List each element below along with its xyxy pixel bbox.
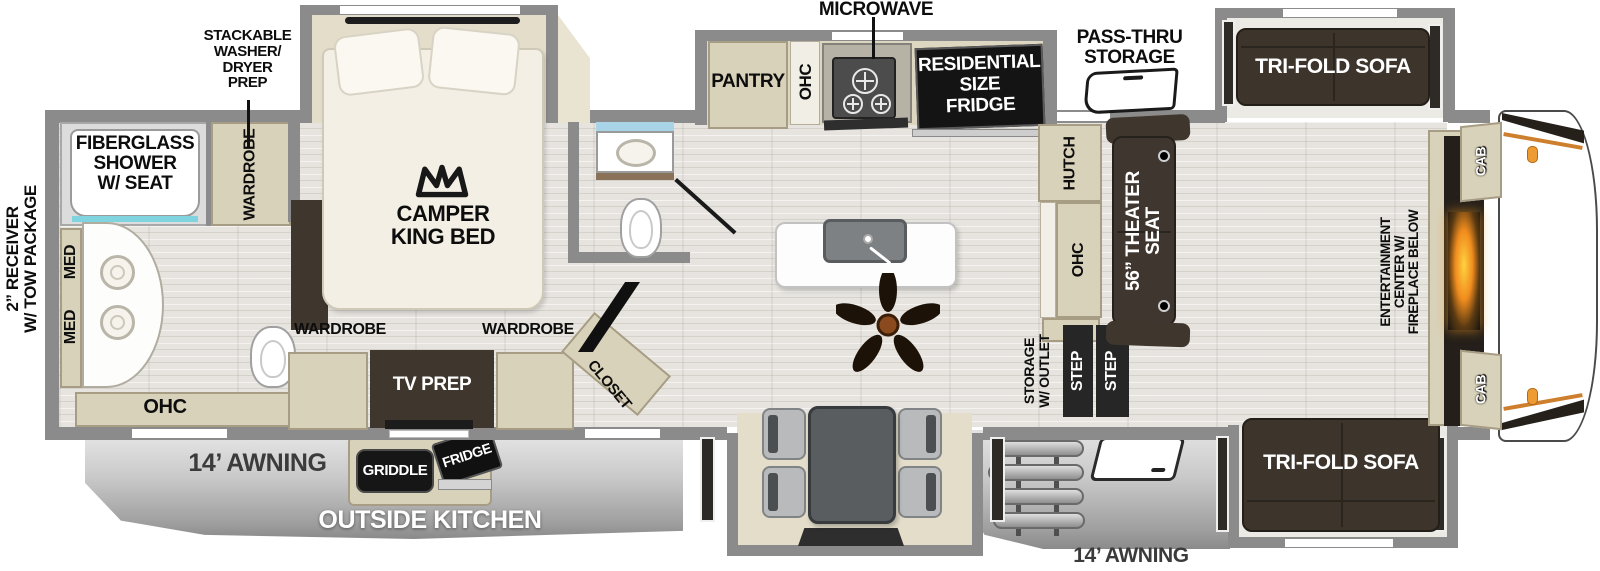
washer-dryer-pointer <box>247 100 250 147</box>
halfbath-sink-cabinet <box>596 131 674 173</box>
griddle: GRIDDLE <box>356 449 434 493</box>
wardrobe-left-label: WARDROBE <box>290 322 390 339</box>
step-rear-label: STEP <box>1070 341 1086 401</box>
fireplace <box>1448 212 1480 330</box>
rear-wardrobe-label: WARDROBE <box>243 127 260 223</box>
outside-fridge-label: FRIDGE <box>437 439 497 471</box>
outside-fridge-shelf <box>438 479 492 490</box>
dinette-window-left <box>700 437 715 522</box>
pantry-label: PANTRY <box>706 72 790 92</box>
entertainment-label: ENTERTAINMENT CENTER W/ FIREPLACE BELOW <box>1379 197 1425 347</box>
residential-fridge: RESIDENTIAL SIZE FRIDGE <box>915 44 1046 130</box>
entry-door-handle <box>1151 468 1166 472</box>
tv-prep-label: TV PREP <box>370 375 494 395</box>
bedroom-slideout-right-wall <box>546 5 558 123</box>
awning-left-label: 14’ AWNING <box>150 450 365 476</box>
kitchen-vent-sill <box>832 32 903 40</box>
hutch-ohc-label: OHC <box>1071 240 1087 280</box>
vanity-sink-2 <box>100 305 135 340</box>
sofa-bottom-slideout-right-wall <box>1447 425 1458 547</box>
outside-kitchen-label: OUTSIDE KITCHEN <box>310 507 550 533</box>
washer-dryer-label: STACKABLE WASHER/ DRYER PREP <box>185 28 310 91</box>
theater-seat-console-bottom <box>1106 321 1191 348</box>
sofa-bottom <box>1242 418 1440 532</box>
burner-icon-large <box>852 68 878 94</box>
med-lower-label: MED <box>63 304 79 350</box>
marker-light-top <box>1527 146 1538 163</box>
pass-thru-label: PASS-THRU STORAGE <box>1072 28 1187 68</box>
hutch-label: HUTCH <box>1063 134 1080 194</box>
bottom-window-sill-bath <box>132 429 227 438</box>
halfbath-sink-shelf <box>596 173 674 180</box>
crown-icon <box>413 162 471 200</box>
cup-holder-icon-top <box>1158 150 1170 162</box>
island-faucet <box>863 234 873 244</box>
storage-outlet-label: STORAGE W/ OUTLET <box>1022 326 1054 416</box>
bedroom-tv <box>385 420 473 429</box>
burner-icon-right <box>871 94 891 114</box>
dinette-chair-3 <box>898 408 942 460</box>
sofa-top-slideout-right-wall <box>1443 8 1455 122</box>
dinette-chair-2 <box>762 466 806 518</box>
microwave-pointer <box>872 17 875 59</box>
wardrobe-right-label: WARDROBE <box>478 322 578 339</box>
halfbath-toilet <box>620 198 662 258</box>
dinette-slideout-bottom-wall <box>727 545 983 556</box>
fridge-shelf <box>912 129 1044 137</box>
sofa-bottom-label: TRI-FOLD SOFA <box>1249 452 1433 474</box>
bedroom-window <box>345 17 520 24</box>
front-cap <box>1498 110 1598 442</box>
sofa-bottom-window-left <box>1216 436 1229 532</box>
vanity-sink-1 <box>100 255 135 290</box>
sofa-top-window-sill <box>1283 9 1397 17</box>
griddle-label: GRIDDLE <box>358 463 432 479</box>
ceiling-fan-icon <box>836 273 940 377</box>
dinette-slideout-right-wall <box>972 433 983 553</box>
tv-prep: TV PREP <box>370 350 494 428</box>
halfbath-window <box>596 122 674 131</box>
sofa-top-window-right <box>1428 24 1442 110</box>
pass-thru-door <box>1083 67 1179 114</box>
residential-fridge-label: RESIDENTIAL SIZE FRIDGE <box>917 52 1043 119</box>
marker-light-bottom <box>1527 388 1538 405</box>
dinette-window-right <box>990 437 1005 522</box>
receiver-label: 2” RECEIVER W/ TOW PACKAGE <box>4 170 42 348</box>
halfbath-wall-vertical <box>568 122 579 263</box>
bottom-window-sill-closet <box>585 429 660 438</box>
hutch-counter-edge <box>1040 202 1056 318</box>
dinette-slideout-left-wall <box>727 433 738 553</box>
burner-icon-left <box>843 94 863 114</box>
king-bed-label: CAMPER KING BED <box>363 202 523 248</box>
wardrobe-right <box>496 352 574 430</box>
sofa-bottom-slideout-left-wall <box>1228 425 1239 547</box>
kitchen-slideout-right-wall <box>1043 30 1057 125</box>
cup-holder-icon-bottom <box>1158 300 1170 312</box>
bedroom-window-sill <box>340 6 520 14</box>
bed-pillow-right <box>427 26 521 97</box>
dinette-chair-4 <box>898 466 942 518</box>
theater-seat-label: 56” THEATER SEAT <box>1124 170 1164 292</box>
sofa-bottom-window-sill <box>1285 539 1393 547</box>
rear-wall <box>45 110 59 440</box>
rv-floorplan: 14’ AWNING OUTSIDE KITCHEN 14’ AWNING FR… <box>0 0 1600 571</box>
cab-bottom-label: CAB <box>1474 370 1489 410</box>
bedroom-tv-stand <box>389 430 469 438</box>
dinette-table <box>808 406 896 524</box>
sofa-top-window-left <box>1222 20 1235 106</box>
med-upper-label: MED <box>63 239 79 285</box>
dinette-window-rear <box>798 528 904 546</box>
dinette-chair-1 <box>762 408 806 460</box>
bath-ohc-label: OHC <box>120 397 210 418</box>
wardrobe-left <box>288 352 368 430</box>
bottom-wall-b <box>983 427 1230 440</box>
shower-label: FIBERGLASS SHOWER W/ SEAT <box>62 134 208 194</box>
bed-pillow-left <box>333 27 426 97</box>
shower: FIBERGLASS SHOWER W/ SEAT <box>60 122 210 226</box>
microwave-label: MICROWAVE <box>806 0 946 20</box>
bedroom-slideout-wedge <box>558 15 590 123</box>
awning-right-label: 14’ AWNING <box>1056 545 1206 567</box>
entry-door <box>1090 437 1186 481</box>
step-front-label: STEP <box>1104 341 1120 401</box>
sofa-top-label: TRI-FOLD SOFA <box>1243 56 1423 78</box>
cab-top-label: CAB <box>1474 142 1489 182</box>
kitchen-ohc-label: OHC <box>797 62 813 102</box>
island-sink <box>823 219 907 263</box>
